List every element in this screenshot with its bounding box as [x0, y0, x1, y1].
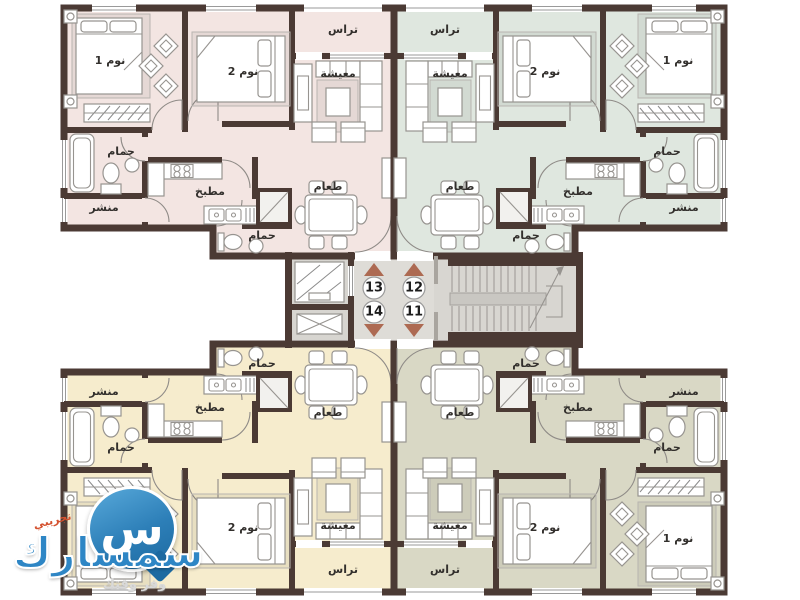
apartment-unit-12	[394, 4, 728, 261]
room-label-terrace-unit-13: تراس	[328, 23, 358, 36]
room-label-bedroom2-unit-14: نوم 2	[228, 521, 259, 534]
room-label-terrace-unit-11: تراس	[430, 563, 460, 576]
room-label-laundry-unit-11: منشر	[668, 385, 698, 398]
room-label-bedroom1-unit-12: نوم 1	[663, 54, 694, 67]
apartment-unit-11	[394, 339, 728, 596]
room-label-kitchen-unit-13: مطبخ	[195, 185, 225, 198]
unit-number-badge: 12	[403, 277, 425, 299]
room-label-bath-unit-12: حمام	[653, 145, 681, 158]
room-label-laundry-unit-13: منشر	[88, 201, 118, 214]
room-label-laundry-unit-14: منشر	[88, 385, 118, 398]
unit-number-14: 14	[365, 305, 383, 320]
room-label-bedroom1-unit-13: نوم 1	[95, 54, 126, 67]
unit-number-13: 13	[365, 281, 383, 296]
floor-plan-screenshot: 13 12 14 11 نوم 1نوم 2تراسمعيشةحماممنشرم…	[0, 0, 800, 600]
room-label-bath-unit-14: حمام	[107, 441, 135, 454]
room-label-kitchen-unit-14: مطبخ	[195, 401, 225, 414]
unit-number-badge: 11	[403, 301, 425, 323]
room-label-terrace-unit-12: تراس	[430, 23, 460, 36]
room-label-dining-unit-11: طعام	[446, 406, 475, 419]
apartment-unit-14	[61, 339, 395, 596]
room-label-kitchen-unit-11: مطبخ	[563, 401, 593, 414]
room-label-guest_bath-unit-14: حمام	[248, 357, 276, 370]
room-label-guest_bath-unit-13: حمام	[248, 229, 276, 242]
unit-number-badge: 13	[363, 277, 385, 299]
floor-plan: 13 12 14 11 نوم 1نوم 2تراسمعيشةحماممنشرم…	[0, 0, 800, 600]
room-label-bath-unit-11: حمام	[653, 441, 681, 454]
room-label-living-unit-12: معيشة	[432, 67, 467, 80]
room-label-guest_bath-unit-12: حمام	[512, 229, 540, 242]
room-label-living-unit-14: معيشة	[320, 519, 355, 532]
unit-number-badge: 14	[363, 301, 385, 323]
unit-number-12: 12	[405, 281, 423, 296]
room-label-dining-unit-12: طعام	[446, 180, 475, 193]
room-label-kitchen-unit-12: مطبخ	[563, 185, 593, 198]
unit-number-11: 11	[405, 305, 423, 320]
room-label-bath-unit-13: حمام	[107, 145, 135, 158]
room-label-dining-unit-14: طعام	[314, 406, 343, 419]
room-label-bedroom1-unit-11: نوم 1	[663, 532, 694, 545]
apartment-unit-13	[61, 4, 395, 261]
room-label-living-unit-13: معيشة	[320, 67, 355, 80]
room-label-laundry-unit-12: منشر	[668, 201, 698, 214]
room-label-guest_bath-unit-11: حمام	[512, 357, 540, 370]
room-label-living-unit-11: معيشة	[432, 519, 467, 532]
room-label-bedroom2-unit-13: نوم 2	[228, 65, 259, 78]
room-label-dining-unit-13: طعام	[314, 180, 343, 193]
room-label-bedroom2-unit-11: نوم 2	[530, 521, 561, 534]
room-label-bedroom2-unit-12: نوم 2	[530, 65, 561, 78]
room-label-bedroom1-unit-14: نوم 1	[95, 532, 126, 545]
room-label-terrace-unit-14: تراس	[328, 563, 358, 576]
